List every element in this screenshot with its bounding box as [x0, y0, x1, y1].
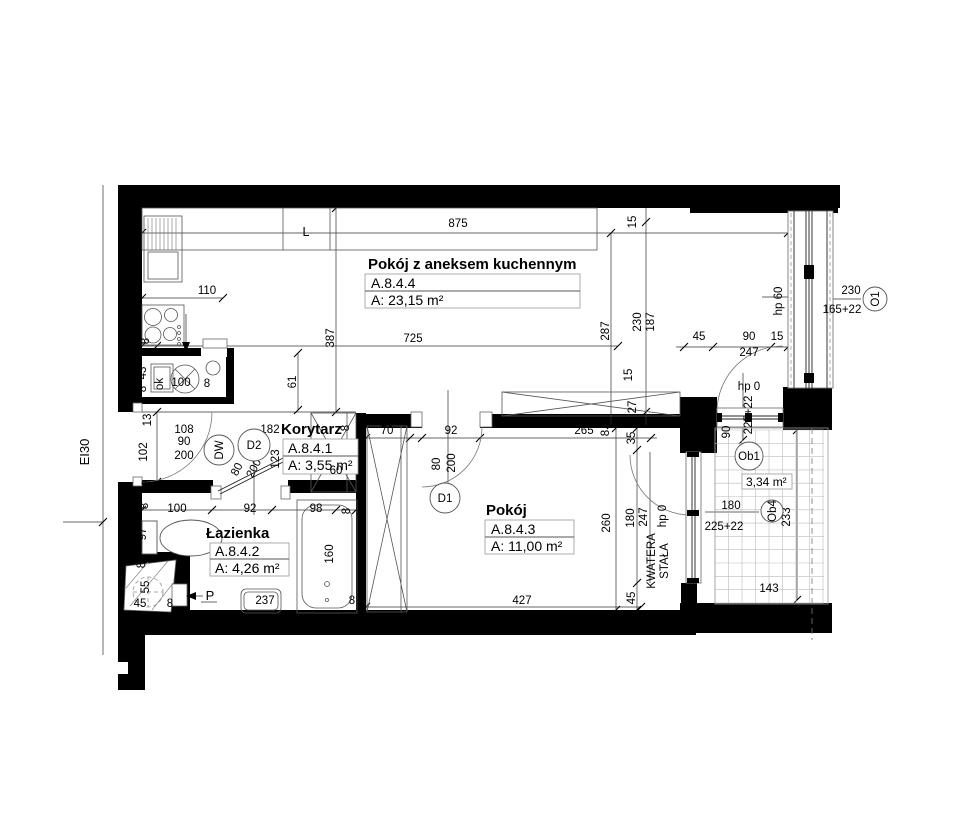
window-note-kwatera: KWATERA [646, 533, 658, 589]
dimension-label: hp 0 [657, 505, 669, 527]
dimension-label: 143 [759, 583, 778, 595]
dimension-label: hp 0 [738, 381, 760, 393]
dimension-label: 8 [349, 595, 355, 607]
dimension-label: 45 [134, 598, 147, 610]
room-code: A.8.4.4 [371, 275, 416, 291]
wall-notch [118, 662, 128, 674]
room-area: A: 11,00 m² [491, 538, 563, 554]
dimension-label: 8 [139, 503, 151, 509]
dimension-label: 13 [142, 414, 154, 427]
room-name: Pokój z aneksem kuchennym [368, 256, 576, 273]
dimension-label: 8 [141, 480, 153, 486]
dimension-label: 225+22 [705, 521, 744, 533]
dimension-label: 45 [693, 331, 706, 343]
dimension-label: 108 [174, 424, 193, 436]
fridge-vents [148, 218, 176, 250]
dimension-label: 8 [140, 338, 152, 344]
shaft-access-panel [172, 584, 187, 606]
dimension-label: 8 [167, 598, 173, 610]
shaft-p-label: P [206, 588, 215, 603]
dimension-label: 225+22 [743, 396, 755, 435]
door-jamb [133, 403, 142, 412]
wall [680, 397, 717, 453]
dimension-label: 15 [627, 216, 639, 229]
dimension-label: 237 [255, 595, 274, 607]
dimension-label: 230 [632, 312, 644, 331]
dimension-label: 180 [721, 500, 740, 512]
kitchen-letter-label: L [303, 225, 310, 239]
bathtub-drain [325, 582, 330, 587]
wall [783, 387, 832, 430]
window-O1 [788, 211, 833, 388]
dimension-label: 100 [171, 377, 190, 389]
dimension-label: 80 [229, 461, 246, 478]
door-jamb [480, 412, 492, 427]
dimension-label: 8 [341, 508, 353, 514]
balcony-door-mark [687, 452, 699, 457]
room-area: A: 23,15 m² [371, 292, 444, 308]
dimension-label: 247 [638, 507, 650, 526]
room-name: Pokój [486, 502, 527, 519]
burner [165, 309, 178, 322]
floor-plan-page: Pokój z aneksem kuchennym A.8.4.4 A: 23,… [0, 0, 968, 820]
dimension-label: 247 [739, 347, 758, 359]
room-area: A: 4,26 m² [215, 560, 280, 576]
dimension-label: 90 [721, 426, 733, 439]
room-name: Korytarz [281, 421, 342, 438]
dimension-label: 102 [138, 442, 150, 461]
dimension-label: 427 [512, 595, 531, 607]
dimension-label: 203 [132, 260, 144, 279]
dimension-label: 90 [178, 436, 191, 448]
door-jamb [281, 486, 290, 499]
dimension-label: ok [154, 378, 166, 390]
dimension-label: 725 [403, 333, 422, 345]
window-O1-stile [804, 373, 814, 383]
dimension-label: 265 [574, 425, 593, 437]
room-label-living: Pokój z aneksem kuchennym A.8.4.4 A: 23,… [365, 256, 580, 308]
room-name: Łazienka [206, 525, 270, 542]
bathtub-overflow [326, 599, 329, 602]
fridge-inner [148, 252, 178, 279]
stove-knob [178, 332, 181, 335]
dimension-label: 90 [743, 331, 756, 343]
dimension-label: 180 [625, 508, 637, 527]
room-label-bathroom: Łazienka A.8.4.2 A: 4,26 m² [206, 525, 289, 576]
window-note-stala: STAŁA [659, 543, 671, 579]
o1-marker-label: O1 [870, 291, 882, 306]
dimension-label: 8 [136, 562, 148, 568]
dimension-label: 98 [310, 503, 323, 515]
dimension-label: 875 [448, 218, 467, 230]
dimension-label: 260 [601, 513, 613, 532]
dimension-label: 110 [198, 285, 216, 297]
dimension-label: 8 [600, 430, 612, 436]
room-code: A.8.4.2 [215, 543, 260, 559]
tech-room-door-gap [201, 348, 227, 357]
wall [680, 603, 832, 633]
dimension-label: 287 [600, 321, 612, 340]
dimension-label: 100 [167, 503, 186, 515]
wall [118, 610, 696, 635]
dimension-label: 61 [287, 376, 299, 389]
stove-knob [178, 326, 181, 329]
dimension-label: 187 [645, 312, 657, 331]
dimension-label: 92 [445, 425, 458, 437]
dimension-label: hp 60 [773, 287, 785, 316]
dimension-label: 27 [627, 401, 639, 414]
dimension-label: 165+22 [823, 304, 862, 316]
floor-plan-drawing: Pokój z aneksem kuchennym A.8.4.4 A: 23,… [0, 0, 968, 820]
wall [288, 480, 356, 493]
living-sideboard-cross [502, 392, 680, 416]
fire-rating-label: EI30 [77, 439, 92, 466]
dimension-label: 70 [381, 425, 394, 437]
dimension-label: 55 [140, 581, 152, 594]
dimension-label: 60 [330, 465, 343, 477]
balcony-door-mark [778, 413, 783, 422]
balcony-area-text: 3,34 m² [746, 475, 787, 489]
dimension-label: 45 [626, 592, 638, 605]
door-jamb [211, 486, 221, 499]
balcony-door-mark [687, 510, 699, 516]
dimension-label: 15 [623, 369, 635, 382]
dimension-label: 200 [446, 453, 458, 472]
burner [164, 328, 177, 341]
dimension-label: 8 [324, 486, 336, 492]
dimension-label: 200 [174, 450, 193, 462]
dimension-label: 80 [431, 458, 443, 471]
balcony-area-label: 3,34 m² [742, 474, 792, 489]
dimension-label: 387 [325, 328, 337, 347]
stove-knob [178, 338, 181, 341]
room-area: A: 3,55 m² [288, 457, 353, 473]
dimension-label: 8 [137, 386, 149, 392]
balcony-door-side [686, 452, 701, 583]
dimension-label: 43 [137, 367, 149, 380]
room-code: A.8.4.1 [288, 440, 333, 456]
dimension-label: 15 [771, 331, 784, 343]
wall [690, 185, 838, 213]
room-label-room: Pokój A.8.4.3 A: 11,00 m² [485, 502, 574, 554]
ob1-marker-label: Ob1 [738, 451, 760, 463]
window-O1-stile [804, 265, 814, 279]
room-code: A.8.4.3 [491, 521, 536, 537]
dimension-label: 123 [270, 449, 282, 468]
dimension-label: 35 [626, 432, 638, 445]
d1-marker-label: D1 [438, 493, 453, 505]
dimension-label: 8 [340, 425, 352, 431]
kitchen-counter [142, 208, 597, 250]
tech-room-door-leaf [203, 339, 227, 348]
ob4-marker-label: Ob4 [767, 500, 779, 522]
dw-marker-label: DW [214, 440, 226, 459]
d2-marker-label: D2 [247, 440, 262, 452]
room-wardrobe-cross [367, 426, 407, 612]
dimension-label: 97 [137, 528, 149, 541]
dimension-label: 230 [841, 285, 860, 297]
door-jamb [411, 412, 422, 427]
burner [145, 309, 162, 326]
dimension-label: 160 [324, 544, 336, 563]
balcony-door-mark [687, 578, 699, 583]
dimension-label: 92 [244, 503, 257, 515]
balcony-door-mark [717, 413, 722, 422]
dimension-label: 8 [204, 378, 210, 390]
